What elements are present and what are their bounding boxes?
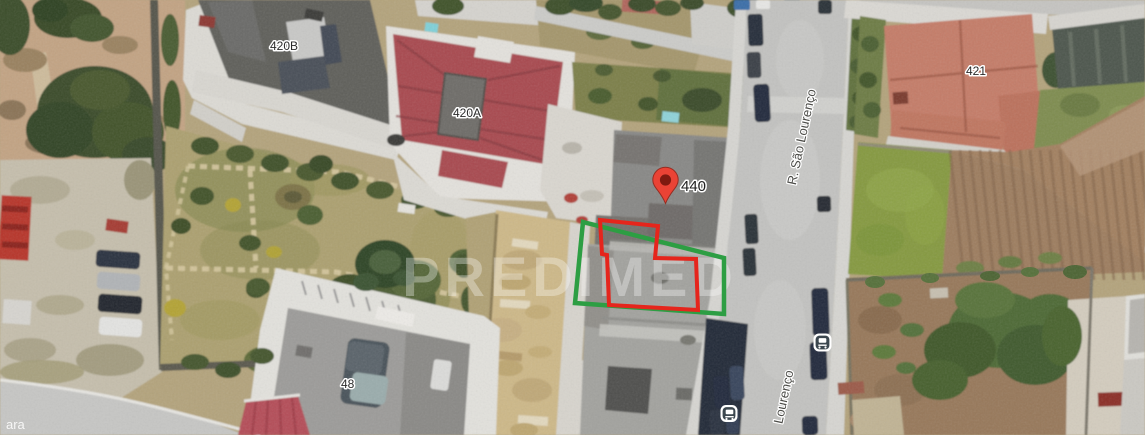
svg-text:440: 440 bbox=[681, 178, 706, 195]
svg-text:PREDIMED: PREDIMED bbox=[402, 245, 738, 308]
svg-text:ara: ara bbox=[6, 417, 26, 432]
svg-text:420A: 420A bbox=[453, 106, 481, 120]
svg-text:421: 421 bbox=[966, 64, 986, 78]
svg-text:48: 48 bbox=[341, 377, 355, 391]
svg-text:420B: 420B bbox=[270, 39, 298, 53]
